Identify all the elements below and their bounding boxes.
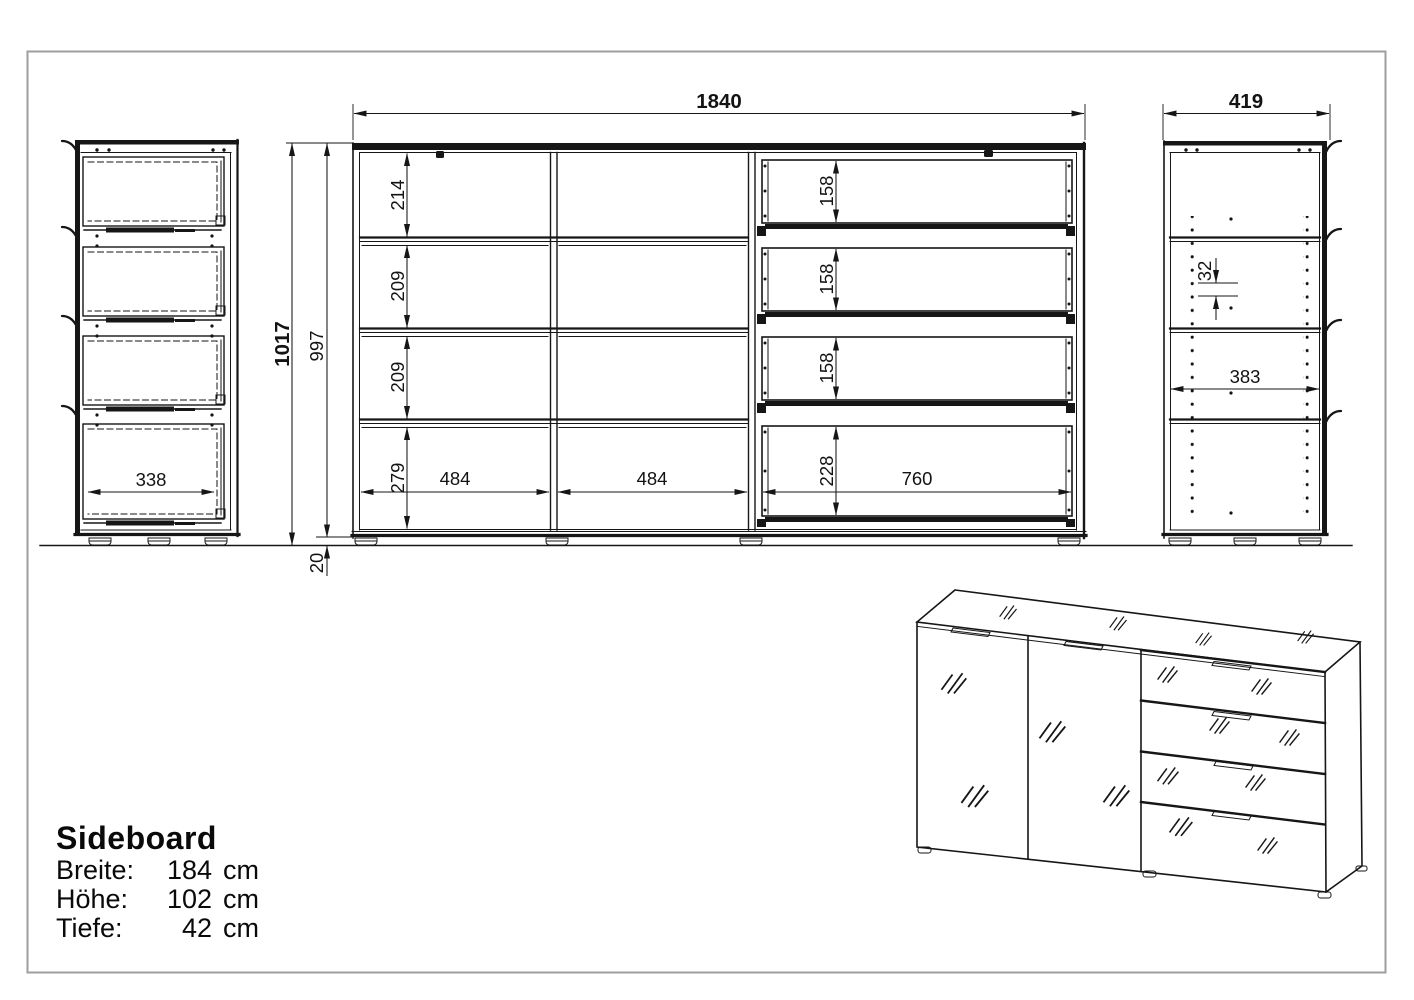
spec-block: Sideboard Breite: 184 cm Höhe: 102 cm Ti… — [56, 820, 259, 943]
product-title: Sideboard — [56, 820, 259, 856]
dim-label-484: 484 — [440, 468, 471, 489]
dim-label-760: 760 — [902, 468, 933, 489]
dim-label-279: 279 — [387, 463, 408, 494]
handle-hook-icon — [62, 227, 77, 238]
dim-label-209: 209 — [387, 271, 408, 302]
spec-unit: cm — [223, 885, 259, 914]
dim-label-32: 32 — [1194, 261, 1215, 282]
handle-hook-icon — [1326, 320, 1341, 331]
dimension-32: 32 — [1194, 258, 1238, 320]
front-drawer — [757, 248, 1075, 324]
dim-label-997: 997 — [306, 331, 327, 362]
dim-label-158: 158 — [816, 264, 837, 295]
spec-row-tiefe: Tiefe: 42 cm — [56, 914, 259, 943]
handle-hook-icon — [1326, 141, 1341, 152]
spec-unit: cm — [223, 856, 259, 885]
spec-label: Höhe: — [56, 885, 164, 914]
dim-label-338: 338 — [136, 469, 167, 490]
isometric-view — [917, 590, 1367, 898]
hinge-cam-icon — [436, 151, 444, 158]
handle-hook-icon — [62, 316, 77, 327]
dim-label-158: 158 — [816, 353, 837, 384]
spec-value: 184 — [164, 856, 212, 885]
front-drawer — [757, 160, 1075, 236]
dim-label-383: 383 — [1230, 366, 1261, 387]
spec-value: 102 — [164, 885, 212, 914]
dimension-419: 419 — [1163, 90, 1330, 140]
dim-label-209: 209 — [387, 362, 408, 393]
spec-label: Tiefe: — [56, 914, 164, 943]
handle-hook-icon — [1326, 229, 1341, 240]
dimension-338: 338 — [88, 469, 214, 492]
dim-label-484: 484 — [637, 468, 668, 489]
side-drawer — [83, 247, 225, 323]
dim-label-158: 158 — [816, 176, 837, 207]
pin-holes-column — [1304, 216, 1309, 516]
front-dimensions: 1840 214 209 209 279 158 158 158 228 484… — [353, 90, 1085, 529]
left-side-view: 338 — [62, 140, 239, 545]
spec-unit: cm — [223, 914, 259, 943]
dim-label-214: 214 — [387, 180, 408, 211]
blueprint-page: 338 1017 997 20 — [0, 0, 1414, 1000]
dim-label-1840: 1840 — [696, 90, 742, 113]
hinge-cam-icon — [984, 150, 993, 157]
dim-label-419: 419 — [1229, 90, 1263, 113]
side-drawer — [83, 157, 225, 233]
side-drawer — [83, 336, 225, 412]
height-dimensions: 1017 997 20 — [271, 143, 352, 576]
right-side-view: 419 32 383 — [1163, 90, 1341, 545]
handle-hook-icon — [62, 406, 77, 417]
handle-hook-icon — [62, 141, 77, 152]
dim-label-20: 20 — [306, 553, 327, 574]
handle-hook-icon — [1326, 411, 1341, 422]
spec-label: Breite: — [56, 856, 164, 885]
spec-row-breite: Breite: 184 cm — [56, 856, 259, 885]
spec-row-hoehe: Höhe: 102 cm — [56, 885, 259, 914]
front-drawer — [757, 337, 1075, 413]
dim-label-228: 228 — [816, 456, 837, 487]
spec-value: 42 — [164, 914, 212, 943]
dim-label-1017: 1017 — [271, 321, 294, 367]
